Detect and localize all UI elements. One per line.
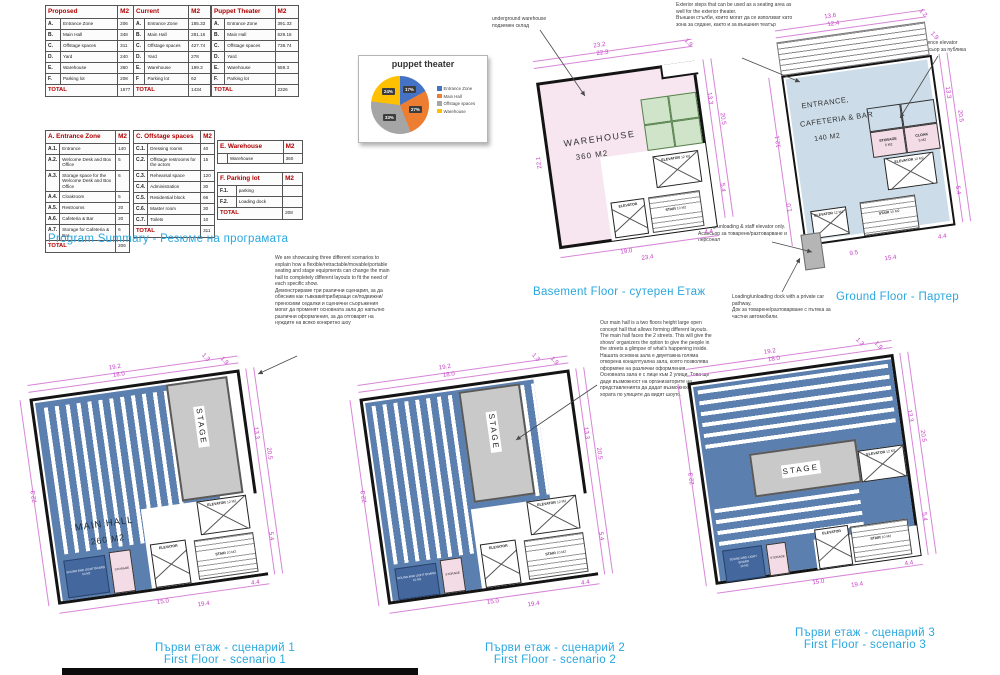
annotation-exterior-steps: Exterior steps that can be used as a sea… — [676, 2, 794, 28]
scenario3-caption-bg: Първи етаж - сценарий 3 — [755, 627, 975, 639]
elevator-box: ELEVATOR — [150, 539, 192, 588]
dim-label: 15.0 — [486, 597, 499, 606]
legend-swatch — [437, 101, 442, 106]
scenario1-caption: Първи етаж - сценарий 1 First Floor - sc… — [115, 642, 335, 666]
stair-label: STAIR 10 M2 — [197, 547, 255, 560]
pie-chart-panel: puppet theater 17% 27% 33% 24% Entrance … — [358, 55, 488, 143]
table-total-row: TOTAL2326 — [212, 84, 299, 96]
row-value: 199.3 — [189, 62, 211, 73]
sound-light-board: SOUND AND LIGHT BOARD10 M2 — [394, 563, 440, 601]
row-name: Administration — [148, 181, 201, 192]
dim-label: 13.3 — [582, 427, 591, 440]
legend-label: Entrance Zone — [444, 86, 473, 91]
row-code: A.5. — [46, 203, 60, 214]
first-floor-scenario3-plan: STAGE ELEVATOR 12 M2 STAIR 10 M2 ELEVATO… — [683, 335, 947, 622]
dim-label: 5.4 — [719, 183, 727, 192]
row-name: Master room — [148, 203, 201, 214]
row-name: Yard — [225, 51, 275, 62]
row-value: 360 — [283, 153, 302, 164]
basement-floor-plan: ELEVATOR 12 M2 ELEVATOR STAIR 10 M2 WARE… — [535, 51, 733, 273]
row-value: 30 — [201, 181, 215, 192]
row-code: E. — [212, 62, 225, 73]
dim-label: 5.4 — [267, 531, 275, 540]
table-unit: M2 — [283, 173, 303, 186]
stair-label: STAIR 10 M2 — [853, 532, 909, 544]
row-code: A.2. — [46, 154, 60, 170]
stair: STAIR 10 M2 — [194, 532, 259, 580]
row-code: F. — [46, 73, 61, 84]
dim-label: 9.5 — [849, 249, 858, 257]
row-code: D. — [46, 51, 61, 62]
elevator-box: ELEVATOR 12 M2 — [526, 495, 580, 536]
table-unit: M2 — [201, 131, 215, 144]
row-name: Main Hall — [225, 29, 275, 40]
table-row: C.2.Offstage restrooms for the actors15 — [134, 154, 215, 170]
legend-label: Main Hall — [444, 94, 462, 99]
table-row: C.5.Residential block66 — [134, 192, 215, 203]
table-title: F. Parking lot — [218, 173, 283, 186]
row-name: Loading dock — [236, 196, 282, 207]
row-value: 629.16 — [275, 29, 299, 40]
dim-label: 4.4 — [581, 579, 590, 587]
table-row: C.6.Master room30 — [134, 203, 215, 214]
ground-caption: Ground Floor - Партер — [836, 291, 959, 303]
row-name: Yard — [60, 51, 117, 62]
scenario2-outline: STAGE ELEVATOR 12 M2 STAIR 10 M2 ELEVATO… — [359, 369, 598, 604]
table-row: C.Offstage spaces427.74 — [134, 40, 211, 51]
total-label: TOTAL — [212, 84, 276, 96]
elevator-box: ELEVATOR 12 M2 — [196, 495, 250, 536]
scenario1-outline: STAGE ELEVATOR 12 M2 STAIR 10 M2 ELEVATO… — [29, 369, 268, 604]
row-code: C.2. — [134, 154, 148, 170]
legend-item: Main Hall — [437, 94, 475, 99]
row-name: parking — [236, 185, 282, 196]
table-row: F.2.Loading dock — [218, 196, 303, 207]
row-name: Main Hall — [60, 29, 117, 40]
row-name: Cloakroom — [60, 192, 116, 203]
table-row: A.1.Entrance140 — [46, 143, 130, 154]
dim-label: 22.3 — [596, 49, 609, 58]
row-code: E. — [134, 62, 145, 73]
row-code: A.3. — [46, 170, 60, 192]
pie-value-label: 17% — [403, 86, 416, 93]
table-row: C.Offstage spaces738.74 — [212, 40, 299, 51]
row-name: Yard — [145, 51, 189, 62]
table-row: B.Main Hall629.16 — [212, 29, 299, 40]
legend-item: Entrance Zone — [437, 86, 475, 91]
dim-label: 5.4 — [597, 531, 605, 540]
row-code: F.1. — [218, 185, 237, 196]
row-value: 40 — [201, 143, 215, 154]
row-value: 20 — [116, 203, 130, 214]
table-row: A.6.Cafeteria & Bar20 — [46, 214, 130, 225]
dim-label: 19.4 — [851, 580, 864, 589]
row-value: 62 — [189, 73, 211, 84]
total-label: TOTAL — [134, 84, 189, 96]
row-value: 20 — [116, 214, 130, 225]
row-code — [218, 153, 228, 164]
table-row: B.Main Hall281.16 — [134, 29, 211, 40]
dim-label: 15.0 — [156, 597, 169, 606]
table-row: A.Entrance Zone206 — [46, 18, 141, 29]
wall-notch — [660, 60, 699, 79]
dim-label: 12.1 — [774, 135, 783, 148]
dim-label: 20.5 — [919, 430, 928, 443]
scenario2-caption-bg: Първи етаж - сценарий 2 — [445, 642, 665, 654]
row-value: 5 — [116, 154, 130, 170]
row-value: 30 — [201, 203, 215, 214]
stair-label: STAIR 10 M2 — [651, 203, 701, 215]
legend-swatch — [437, 109, 442, 114]
legend-label: Warehouse — [444, 109, 466, 114]
table-unit: M2 — [116, 131, 130, 144]
table-row: C.Offstage spaces311 — [46, 40, 141, 51]
chart-title: puppet theater — [359, 59, 487, 69]
row-value — [283, 196, 303, 207]
scenario1-caption-en: First Floor - scenario 1 — [115, 654, 335, 666]
table-row: F.Parking lot208 — [46, 73, 141, 84]
row-name: Warehouse — [227, 153, 283, 164]
storage-room: STORAGE5 M2 — [870, 127, 907, 157]
row-name: Restrooms — [60, 203, 116, 214]
row-code: C.5. — [134, 192, 148, 203]
table-row: A.3.Storage space for the Welcome Desk a… — [46, 170, 130, 192]
table-row: A.5.Restrooms20 — [46, 203, 130, 214]
table-row: A.Entrance Zone391.33 — [212, 18, 299, 29]
elevator-label: ELEVATOR — [815, 528, 847, 537]
annotation-scenarios-intro: We are showcasing three different scenar… — [275, 255, 390, 327]
pie-chart: 17% 27% 33% 24% — [371, 76, 429, 134]
total-label: TOTAL — [218, 207, 283, 219]
row-code: B. — [134, 29, 145, 40]
elevator-label: ELEVATOR 12 M2 — [812, 209, 846, 218]
row-name: Offstage spaces — [60, 40, 117, 51]
table-parking-lot: F. Parking lotM2F.1.parkingF.2.Loading d… — [217, 172, 303, 220]
table-row: C.3.Rehearsal space120 — [134, 170, 215, 181]
table-total-row: TOTAL1677 — [46, 84, 141, 96]
table-row: A.Entrance Zone185.33 — [134, 18, 211, 29]
storage-label: STORAGE — [443, 571, 463, 578]
total-value: 2326 — [275, 84, 299, 96]
basement-caption: Basement Floor - сутерен Етаж — [533, 286, 705, 298]
storage-label: STORAGE — [112, 566, 132, 573]
row-value: 5 — [116, 192, 130, 203]
table-total-row: TOTAL1434 — [134, 84, 211, 96]
row-value: 15 — [201, 154, 215, 170]
table-row: C.4.Administration30 — [134, 181, 215, 192]
dim-label: 19.4 — [197, 600, 210, 609]
table-row: C.7.Toilets10 — [134, 214, 215, 225]
row-code: E. — [46, 62, 61, 73]
dim-label: 4.4 — [704, 228, 713, 236]
row-value: 140 — [116, 143, 130, 154]
row-code: A.6. — [46, 214, 60, 225]
board-label: SOUND AND LIGHT BOARD10 M2 — [724, 554, 763, 571]
sound-light-board: SOUND AND LIGHT BOARD10 M2 — [722, 545, 766, 582]
table-row: D.Yard240 — [46, 51, 141, 62]
table-row: B.Main Hall348 — [46, 29, 141, 40]
row-name: Toilets — [148, 214, 201, 225]
dim-label: 13.3 — [706, 92, 715, 105]
dim-label: 20.5 — [719, 112, 728, 125]
row-name: Entrance Zone — [60, 18, 117, 29]
table-title: Current — [134, 6, 189, 19]
table-warehouse: E. WarehouseM2Warehouse360 — [217, 140, 303, 164]
row-name: Parking lot — [60, 73, 117, 84]
row-name: Offstage restrooms for the actors — [148, 154, 201, 170]
table-title: E. Warehouse — [218, 141, 284, 154]
table-row: D.Yard — [212, 51, 299, 62]
annotation-loading-dock: Loading/unloading dock with a private ca… — [732, 294, 834, 320]
row-name: Main Hall — [145, 29, 189, 40]
chart-legend: Entrance Zone Main Hall Offstage spaces … — [437, 86, 475, 116]
dim-label: 19.0 — [620, 247, 633, 256]
table-row: F.Parking lot — [212, 73, 299, 84]
row-value — [283, 185, 303, 196]
elevator-box: ELEVATOR — [610, 198, 649, 238]
stair: STAIR 10 M2 — [859, 195, 919, 236]
first-floor-scenario2-plan: STAGE ELEVATOR 12 M2 STAIR 10 M2 ELEVATO… — [355, 351, 619, 638]
row-value: 6 — [116, 170, 130, 192]
pie-value-label: 24% — [382, 88, 395, 95]
dim-label: 22.3 — [30, 490, 39, 503]
row-code: A.4. — [46, 192, 60, 203]
row-name: Offstage spaces — [225, 40, 275, 51]
row-value: 66 — [201, 192, 215, 203]
stair-label: STAIR 10 M2 — [527, 547, 585, 560]
table-row: E.Warehouse360 — [46, 62, 141, 73]
green-room — [640, 96, 671, 126]
scenario1-caption-bg: Първи етаж - сценарий 1 — [115, 642, 335, 654]
dim-label: 1.9 — [929, 30, 940, 41]
pie-value-label: 27% — [409, 106, 422, 113]
row-name: Storage space for the Welcome Desk and B… — [60, 170, 116, 192]
elevator-label: ELEVATOR 12 M2 — [528, 498, 576, 509]
elevator-label: ELEVATOR 12 M2 — [859, 448, 903, 459]
pie-value-label: 33% — [383, 114, 396, 121]
dimension-line — [533, 39, 692, 62]
table-row: F.1.parking — [218, 185, 303, 196]
table-title: C. Offstage spaces — [134, 131, 201, 144]
row-code: F. — [212, 73, 225, 84]
row-code: A. — [134, 18, 145, 29]
row-code: C.4. — [134, 181, 148, 192]
row-name: Cafeteria & Bar — [60, 214, 116, 225]
dim-label: 22.1 — [535, 156, 544, 169]
table-row: E.Warehouse199.3 — [134, 62, 211, 73]
row-value: 120 — [201, 170, 215, 181]
dim-label: 22.3 — [687, 472, 696, 485]
table-row: FParking lot62 — [134, 73, 211, 84]
dim-label: 5.4 — [921, 512, 929, 521]
elevator-box: ELEVATOR — [480, 539, 522, 588]
row-code: C.1. — [134, 143, 148, 154]
elevator-label: ELEVATOR 12 M2 — [654, 153, 698, 164]
row-code: D. — [212, 51, 225, 62]
legend-swatch — [437, 94, 442, 99]
stage-label: STAGE — [193, 406, 210, 448]
cloak-room: CLOAK5 M2 — [903, 123, 940, 153]
scenario2-caption-en: First Floor - scenario 2 — [445, 654, 665, 666]
ground-floor-plan: STORAGE5 M2 CLOAK5 M2 ELEVATOR 12 M2 STA… — [771, 19, 974, 290]
ground-outline: STORAGE5 M2 CLOAK5 M2 ELEVATOR 12 M2 STA… — [781, 55, 955, 246]
row-code: C.7. — [134, 214, 148, 225]
storage-label: STORAGE5 M2 — [872, 136, 905, 149]
elevator-box: ELEVATOR — [814, 525, 853, 569]
storage-room: STORAGE — [440, 557, 467, 594]
table-offstage-spaces: C. Offstage spacesM2C.1.Dressing rooms40… — [133, 130, 215, 238]
row-code: C.6. — [134, 203, 148, 214]
elevator-label: ELEVATOR 12 M2 — [885, 155, 933, 166]
row-value — [275, 73, 299, 84]
row-value: 559.3 — [275, 62, 299, 73]
row-name: Warehouse — [60, 62, 117, 73]
table-row: D.Yard278 — [134, 51, 211, 62]
green-room — [644, 121, 675, 151]
row-name: Warehouse — [145, 62, 189, 73]
stair: STAIR 10 M2 — [648, 190, 705, 233]
row-name: Entrance Zone — [145, 18, 189, 29]
stair-label: STAIR 10 M2 — [862, 207, 916, 219]
dim-label: 13.3 — [252, 427, 261, 440]
dim-label: 4.4 — [938, 233, 947, 241]
dim-label: 15.4 — [884, 254, 897, 263]
scenario3-caption-en: First Floor - scenario 3 — [755, 639, 975, 651]
dim-label: 13.3 — [944, 86, 953, 99]
table-unit: M2 — [283, 141, 302, 154]
table-row: A.4.Cloakroom5 — [46, 192, 130, 203]
row-name: Offstage spaces — [145, 40, 189, 51]
total-label: TOTAL — [46, 84, 118, 96]
row-code: A. — [46, 18, 61, 29]
dim-label: 23.4 — [641, 253, 654, 262]
first-floor-scenario1-plan: STAGE ELEVATOR 12 M2 STAIR 10 M2 ELEVATO… — [25, 351, 289, 638]
legend-item: Warehouse — [437, 109, 475, 114]
dim-label: 22.3 — [360, 490, 369, 503]
total-value: 1434 — [189, 84, 211, 96]
row-value: 278 — [189, 51, 211, 62]
table-puppet-theater: Puppet TheaterM2A.Entrance Zone391.33B.M… — [211, 5, 299, 97]
elevator-box: ELEVATOR 12 M2 — [652, 150, 702, 188]
row-value: 391.33 — [275, 18, 299, 29]
row-code: B. — [212, 29, 225, 40]
row-value — [275, 51, 299, 62]
warehouse-room-label: WAREHOUSE — [563, 129, 636, 149]
dim-label: 5.4 — [954, 185, 962, 194]
dim-label: 4.4 — [904, 559, 913, 567]
row-value: 427.74 — [189, 40, 211, 51]
row-code: A. — [212, 18, 225, 29]
storage-label: STORAGE — [768, 555, 786, 561]
legend-label: Offstage spaces — [444, 101, 476, 106]
elevator-label: ELEVATOR — [481, 543, 515, 552]
row-value: 10 — [201, 214, 215, 225]
dim-label: 1.0 — [786, 203, 794, 212]
row-name: Entrance — [60, 143, 116, 154]
annotation-underground-warehouse: underground warehouse подземен склад — [492, 16, 602, 29]
table-proposed: ProposedM2A.Entrance Zone206B.Main Hall3… — [45, 5, 141, 97]
table-row: A.2.Welcome Desk and Box Office5 — [46, 154, 130, 170]
stair: STAIR 10 M2 — [524, 532, 589, 580]
row-code: B. — [46, 29, 61, 40]
dim-label: 20.5 — [956, 109, 965, 122]
scenario2-caption: Първи етаж - сценарий 2 First Floor - sc… — [445, 642, 665, 666]
row-name: Rehearsal space — [148, 170, 201, 181]
elevator-label: ELEVATOR 12 M2 — [198, 498, 246, 509]
table-title: Puppet Theater — [212, 6, 276, 19]
elevator-box: ELEVATOR 12 M2 — [857, 444, 907, 482]
board-label: SOUND AND LIGHT BOARD10 M2 — [397, 572, 438, 585]
scenario3-caption: Първи етаж - сценарий 3 First Floor - sc… — [755, 627, 975, 651]
table-row: C.1.Dressing rooms40 — [134, 143, 215, 154]
total-value: 208 — [283, 207, 303, 219]
row-code: C. — [134, 40, 145, 51]
row-code: D. — [134, 51, 145, 62]
table-unit: M2 — [275, 6, 299, 19]
row-code: C.3. — [134, 170, 148, 181]
green-room — [672, 117, 703, 147]
dim-label: 13.3 — [906, 409, 915, 422]
table-unit: M2 — [189, 6, 211, 19]
row-value: 281.16 — [189, 29, 211, 40]
dim-label: 12.4 — [827, 19, 840, 28]
row-code: F.2. — [218, 196, 237, 207]
storage-room: STORAGE — [766, 542, 790, 576]
table-title: Proposed — [46, 6, 118, 19]
green-room — [668, 92, 699, 122]
elevator-label: ELEVATOR — [151, 543, 185, 552]
row-value: 738.74 — [275, 40, 299, 51]
row-name: Dressing rooms — [148, 143, 201, 154]
row-value: 185.33 — [189, 18, 211, 29]
scenario3-outline: STAGE ELEVATOR 12 M2 STAIR 10 M2 ELEVATO… — [687, 354, 921, 585]
dim-label: 15.0 — [812, 578, 825, 587]
dim-label: 20.5 — [595, 447, 604, 460]
cloak-label: CLOAK5 M2 — [906, 131, 939, 144]
table-title: A. Entrance Zone — [46, 131, 116, 144]
row-name: Entrance Zone — [225, 18, 275, 29]
row-name: Welcome Desk and Box Office — [60, 154, 116, 170]
legend-swatch — [437, 86, 442, 91]
bottom-bar — [62, 668, 418, 675]
table-row: E.Warehouse559.3 — [212, 62, 299, 73]
table-row: Warehouse360 — [218, 153, 303, 164]
table-total-row: TOTAL208 — [218, 207, 303, 219]
row-code: C. — [212, 40, 225, 51]
row-code: A.1. — [46, 143, 60, 154]
legend-item: Offstage spaces — [437, 101, 475, 106]
board-label: SOUND AND LIGHT BOARD10 M2 — [66, 566, 107, 579]
row-code: C. — [46, 40, 61, 51]
row-name: Parking lot — [225, 73, 275, 84]
table-current: CurrentM2A.Entrance Zone185.33B.Main Hal… — [133, 5, 211, 97]
program-summary-caption: Program Summary - Резюме на програмата — [48, 233, 288, 245]
dim-label: 20.5 — [265, 447, 274, 460]
row-name: Warehouse — [225, 62, 275, 73]
stage-label: STAGE — [485, 411, 502, 453]
row-name: Parking lot — [145, 73, 189, 84]
row-name: Residential block — [148, 192, 201, 203]
warehouse-outline: ELEVATOR 12 M2 ELEVATOR STAIR 10 M2 WARE… — [536, 61, 718, 250]
dim-label: 4.4 — [251, 579, 260, 587]
sound-light-board: SOUND AND LIGHT BOARD10 M2 — [63, 555, 110, 598]
stage-label: STAGE — [781, 460, 821, 478]
dim-label: 19.4 — [527, 600, 540, 609]
row-code: F — [134, 73, 145, 84]
